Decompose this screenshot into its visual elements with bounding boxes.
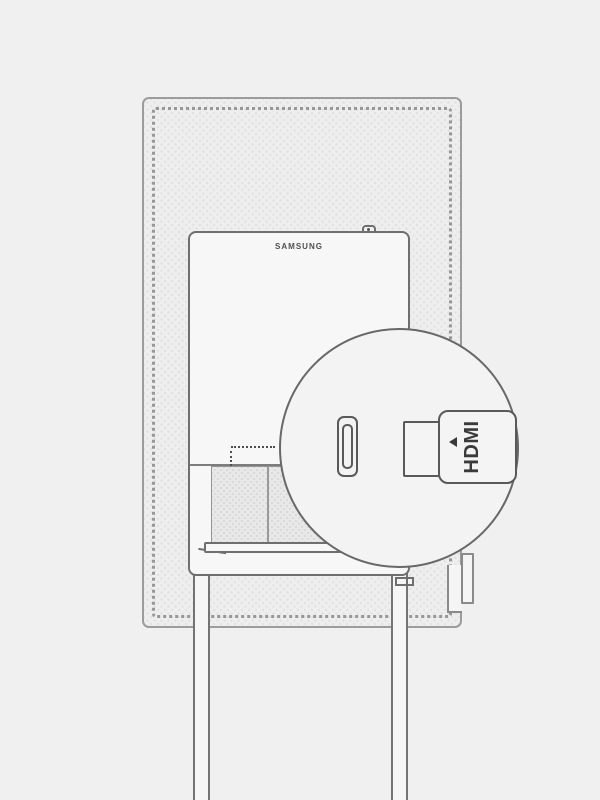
stand-leg-right xyxy=(391,572,408,800)
monitor-right-edge-tab xyxy=(461,553,474,604)
hdmi-plug-label: HDMI xyxy=(461,407,483,487)
terminal-divider-line xyxy=(267,467,269,543)
stand-leg-left xyxy=(193,572,210,800)
insert-direction-arrow-icon xyxy=(449,437,457,447)
monitor-right-edge-notch xyxy=(447,565,462,613)
samsung-logo: SAMSUNG xyxy=(188,242,410,251)
hdmi-port-slot-icon xyxy=(342,424,353,469)
cable-clip xyxy=(395,577,414,586)
cable-route-dots-vertical xyxy=(230,451,232,466)
hdmi-plug-connector-icon xyxy=(403,421,440,477)
cable-route-dots-horizontal xyxy=(231,446,275,448)
diagram-canvas: SAMSUNG HDMI xyxy=(0,0,600,800)
